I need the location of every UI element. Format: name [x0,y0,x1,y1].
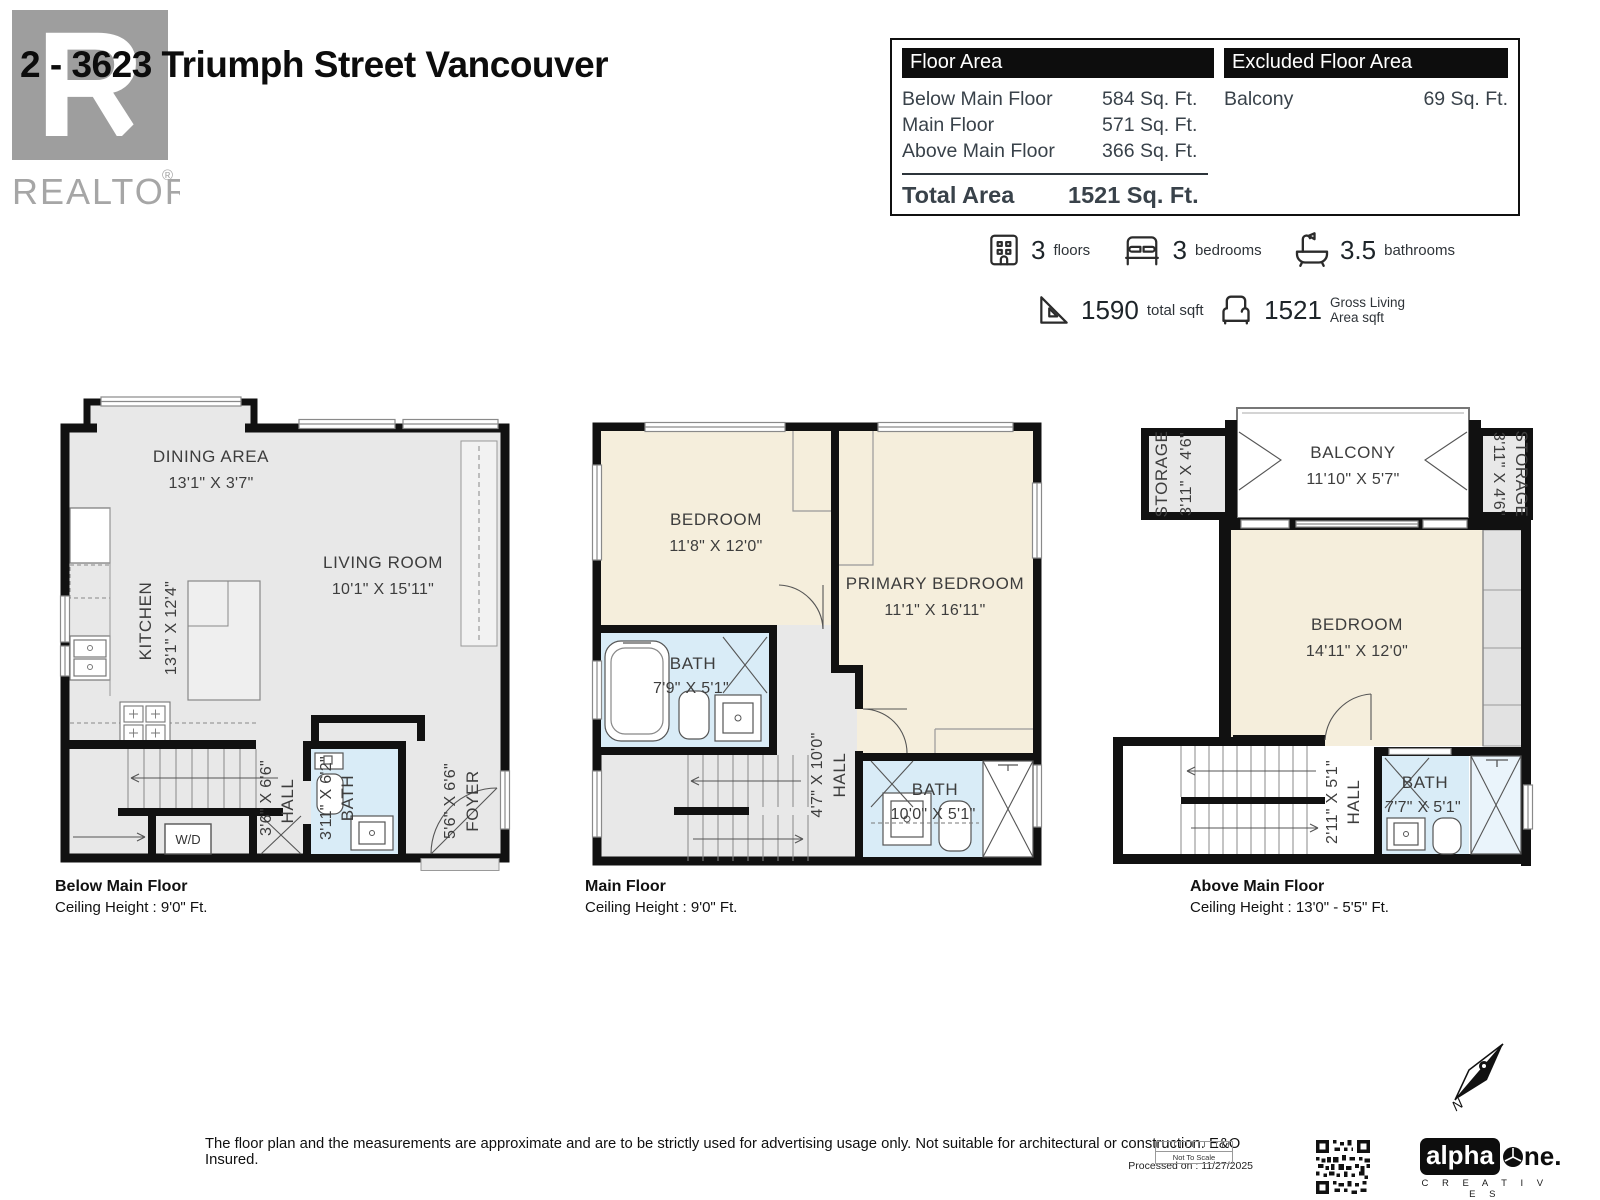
room-dims-bedroom: 14'11" X 12'0" [1306,643,1408,660]
alphaone-one: ne. [1502,1141,1562,1172]
qr-code [1316,1140,1370,1199]
floor-area-table: Floor Area Below Main Floor 584 Sq. Ft. … [890,38,1520,216]
caption-main-floor: Main Floor Ceiling Height : 9'0" Ft. [585,878,737,916]
room-dims-hall: 2'11" X 5'1" [1324,760,1341,844]
room-dims-hall: 4'7" X 10'0" [809,732,826,817]
building-icon [985,231,1023,269]
page-title: 2 - 3623 Triumph Street Vancouver [20,44,608,86]
total-sqft-label: total sqft [1147,302,1204,319]
table-row: Main Floor 571 Sq. Ft. [902,112,1214,138]
room-dims-balcony: 11'10" X 5'7" [1306,471,1399,488]
north-compass-icon: N [1443,1036,1513,1119]
room-label-storage-right: STORAGE [1512,430,1531,517]
stat-bathrooms: 3.5 bathrooms [1292,230,1455,270]
compass-north-letter: N [1449,1095,1467,1114]
room-label-primary: PRIMARY BEDROOM [846,574,1024,593]
excluded-area-header: Excluded Floor Area [1224,48,1508,78]
caption-title: Above Main Floor [1190,878,1389,896]
floor-area-column: Floor Area Below Main Floor 584 Sq. Ft. … [902,48,1214,209]
room-dims-bath: 3'11" X 6'2" [318,756,335,840]
total-label: Total Area [902,182,1068,209]
plan-above-main-floor-drawing: STORAGE 3'11" X 4'6" BALCONY 11'10" X 5'… [1091,390,1537,876]
alpha-box: alpha [1420,1138,1500,1175]
plan-main-floor-drawing: BEDROOM 11'8" X 12'0" PRIMARY BEDROOM 11… [583,403,1051,869]
room-label-kitchen: KITCHEN [136,582,155,661]
room-label-living: LIVING ROOM [323,553,443,572]
scale-ruler-icon [1156,1142,1232,1152]
realtor-logo-text: REALTOR [12,171,180,212]
row-label: Above Main Floor [902,138,1102,164]
realtor-logo: R REALTOR ® [10,8,180,213]
bed-icon [1120,231,1164,269]
table-row: Above Main Floor 366 Sq. Ft. [902,138,1214,164]
aperture-icon [1502,1146,1524,1168]
row-label: Main Floor [902,112,1102,138]
not-to-scale-label: Not To Scale [1156,1152,1232,1163]
gross-living-value: 1521 [1264,295,1322,326]
room-label-balcony: BALCONY [1310,443,1395,462]
plan-main-floor: BEDROOM 11'8" X 12'0" PRIMARY BEDROOM 11… [583,403,1051,874]
room-dims-primary: 11'1" X 16'11" [884,602,985,619]
bathrooms-count: 3.5 [1340,235,1376,266]
total-value: 1521 Sq. Ft. [1068,182,1199,209]
bedrooms-label: bedrooms [1195,242,1262,259]
room-label-wd: W/D [175,832,200,847]
gross-living-label-line1: Gross Living [1330,295,1405,310]
bathtub-icon [1292,230,1332,270]
stats-row-2: 1590 total sqft 1521 Gross Living Area s… [1035,290,1405,330]
room-dims-bath-upper: 7'9" X 5'1" [653,680,729,697]
total-sqft-value: 1590 [1081,295,1139,326]
stats-row-1: 3 floors 3 bedrooms 3.5 bathrooms [985,230,1455,270]
row-value: 571 Sq. Ft. [1102,112,1197,138]
room-label-dining: DINING AREA [153,447,269,466]
caption-above-main-floor: Above Main Floor Ceiling Height : 13'0" … [1190,878,1389,916]
room-dims-kitchen: 13'1" X 12'4" [163,581,180,675]
room-dims-bath: 7'7" X 5'1" [1385,799,1461,816]
room-label-hall: HALL [1344,780,1363,825]
caption-below-main-floor: Below Main Floor Ceiling Height : 9'0" F… [55,878,207,916]
gross-living-label: Gross Living Area sqft [1330,295,1405,325]
row-value: 69 Sq. Ft. [1423,86,1508,112]
table-row: Below Main Floor 584 Sq. Ft. [902,86,1214,112]
room-label-hall: HALL [278,779,297,824]
row-label: Balcony [1224,86,1423,112]
room-dims-storage-left: 3'11" X 4'6" [1178,432,1195,516]
plan-above-main-floor: STORAGE 3'11" X 4'6" BALCONY 11'10" X 5'… [1091,390,1537,881]
registered-mark: ® [162,167,173,184]
room-dims-bedroom: 11'8" X 12'0" [669,538,762,555]
gross-living-label-line2: Area sqft [1330,310,1405,325]
room-label-bath-upper: BATH [670,654,716,673]
total-area-row: Total Area 1521 Sq. Ft. [902,182,1214,209]
bathrooms-label: bathrooms [1384,242,1455,259]
plan-below-main-floor-drawing: W/D DINING AREA 13'1" X 3'7" KITCHEN 13'… [53,396,519,874]
excluded-area-column: Excluded Floor Area Balcony 69 Sq. Ft. [1224,48,1508,209]
floors-label: floors [1053,242,1090,259]
plan-below-main-floor: W/D DINING AREA 13'1" X 3'7" KITCHEN 13'… [53,396,519,879]
bedrooms-count: 3 [1172,235,1186,266]
floorplan-page: { "header": { "title": "2 - 3623 Triumph… [0,0,1600,1200]
stat-total-sqft: 1590 total sqft [1035,291,1204,329]
room-label-bath-lower: BATH [912,780,958,799]
floor-area-header: Floor Area [902,48,1214,78]
room-label-bath: BATH [1402,773,1448,792]
room-label-bedroom: BEDROOM [1311,615,1403,634]
alphaone-creatives-logo: alpha ne. C R E A T I V E S [1420,1138,1550,1200]
room-label-storage-left: STORAGE [1152,430,1171,517]
not-to-scale-badge: Not To Scale [1155,1141,1233,1164]
room-dims-hall: 3'6" X 6'6" [258,760,275,836]
caption-ceiling: Ceiling Height : 9'0" Ft. [55,899,207,916]
table-row: Balcony 69 Sq. Ft. [1224,86,1508,112]
ruler-triangle-icon [1035,291,1073,329]
stat-gross-living: 1521 Gross Living Area sqft [1216,290,1405,330]
creatives-label: C R E A T I V E S [1420,1178,1550,1200]
caption-title: Main Floor [585,878,737,896]
stat-floors: 3 floors [985,231,1090,269]
room-dims-storage-right: 3'11" X 4'6" [1490,432,1507,516]
table-divider [902,173,1208,175]
room-dims-foyer: 5'6" X 6'6" [442,763,459,839]
room-dims-bath-lower: 10'0" X 5'1" [890,806,975,823]
row-value: 366 Sq. Ft. [1102,138,1197,164]
row-value: 584 Sq. Ft. [1102,86,1197,112]
alphaone-ne: ne. [1524,1141,1562,1172]
room-dims-dining: 13'1" X 3'7" [168,475,253,492]
armchair-icon [1216,290,1256,330]
row-label: Below Main Floor [902,86,1102,112]
floors-count: 3 [1031,235,1045,266]
caption-ceiling: Ceiling Height : 13'0" - 5'5" Ft. [1190,899,1389,916]
room-dims-living: 10'1" X 15'11" [332,581,434,598]
room-label-foyer: FOYER [463,770,482,832]
room-label-bedroom: BEDROOM [670,510,762,529]
realtor-logo-graphic: R REALTOR ® [10,8,180,213]
room-label-bath: BATH [338,775,357,821]
alphaone-wordmark: alpha ne. [1420,1138,1550,1175]
caption-ceiling: Ceiling Height : 9'0" Ft. [585,899,737,916]
stat-bedrooms: 3 bedrooms [1120,231,1261,269]
room-label-hall: HALL [830,753,849,798]
caption-title: Below Main Floor [55,878,207,896]
